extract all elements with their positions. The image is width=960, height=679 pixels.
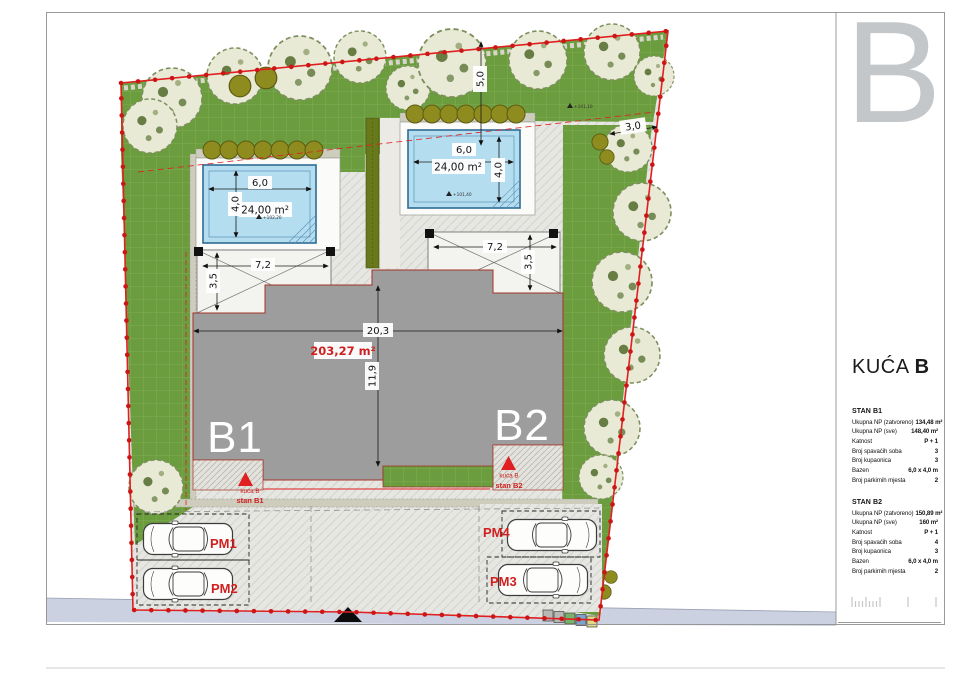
spec-row: Ukupna NP (sve)160 m² <box>852 518 938 528</box>
spec-value: 134,48 m² <box>915 418 942 428</box>
spec-value: 2 <box>935 567 938 577</box>
parking-label-pm4: PM4 <box>483 525 511 540</box>
site-top-setback-dim: 5,0 <box>476 71 487 87</box>
carport2-width-dim: 7,2 <box>487 242 503 253</box>
spec-row: Broj spavaćih soba4 <box>852 538 938 548</box>
parking-label-pm3: PM3 <box>490 574 517 589</box>
spec-row: Broj parkirnih mjesta2 <box>852 567 938 577</box>
pool2-width-dim: 6,0 <box>456 145 472 156</box>
spec-row: Bazen6,0 x 4,0 m <box>852 466 938 476</box>
unit-b2-label: B2 <box>494 401 550 450</box>
spec-value: 6,0 x 4,0 m <box>908 557 938 567</box>
spec-label: Bazen <box>852 557 869 567</box>
spec-label: Katnost <box>852 437 872 447</box>
spec-row: Ukupna NP (zatvoreno)134,48 m² <box>852 418 938 428</box>
spec-b1-header: STAN B1 <box>852 408 938 415</box>
pool1-elevation: +102,20 <box>263 215 282 221</box>
site-plan: 6,0 4,0 24,00 m² 6,0 4,0 24,00 m² 7,2 3,… <box>0 0 960 679</box>
spec-row: Broj spavaćih soba3 <box>852 447 938 457</box>
house-title-accent: B <box>915 356 930 378</box>
spec-value: 148,40 m² <box>911 427 938 437</box>
pool1-width-dim: 6,0 <box>252 178 268 189</box>
hedge-divider <box>366 118 379 268</box>
garden-path <box>380 118 400 268</box>
spec-value: P + 1 <box>924 437 938 447</box>
spec-label: Bazen <box>852 466 869 476</box>
spec-label: Broj spavaćih soba <box>852 447 902 457</box>
spec-label: Ukupna NP (zatvoreno) <box>852 509 913 519</box>
spec-row: Ukupna NP (sve)148,40 m² <box>852 427 938 437</box>
spec-value: 160 m² <box>919 518 938 528</box>
spec-value: 6,0 x 4,0 m <box>908 466 938 476</box>
spec-label: Ukupna NP (zatvoreno) <box>852 418 913 428</box>
building-width-dim: 20,3 <box>367 326 389 337</box>
car-pm4 <box>508 517 597 553</box>
spec-row: Ukupna NP (zatvoreno)150,89 m² <box>852 509 938 519</box>
pool2-depth-dim: 4,0 <box>494 162 505 178</box>
parking-label-pm2: PM2 <box>211 581 238 596</box>
pool2-area-label: 24,00 m² <box>434 162 482 174</box>
entrance-b1-house-label: kuća B <box>240 488 259 495</box>
spec-label: Broj spavaćih soba <box>852 538 902 548</box>
spec-value: 4 <box>935 538 938 548</box>
pool1-depth-dim: 4,0 <box>231 196 242 212</box>
spec-label: Broj kupaonica <box>852 547 891 557</box>
spec-value: 3 <box>935 547 938 557</box>
spec-label: Broj kupaonica <box>852 456 891 466</box>
entrance-b2-house-label: kuća B <box>499 473 518 480</box>
entrance-b2-unit-label: stan B2 <box>495 481 522 490</box>
sheet-corner-letter: B <box>845 16 942 129</box>
spec-label: Broj parkirnih mjesta <box>852 567 905 577</box>
drawing-sheet: 6,0 4,0 24,00 m² 6,0 4,0 24,00 m² 7,2 3,… <box>0 0 960 679</box>
spec-value: 3 <box>935 447 938 457</box>
spec-value: 150,89 m² <box>915 509 942 519</box>
panel-underline <box>838 622 941 623</box>
spec-row: Broj parkirnih mjesta2 <box>852 476 938 486</box>
carport2-depth-dim: 3,5 <box>524 254 535 270</box>
spec-row: Broj kupaonica3 <box>852 456 938 466</box>
pool2-elevation: +101,40 <box>453 192 472 198</box>
building-depth-dim: 11,9 <box>368 365 379 387</box>
spec-row: KatnostP + 1 <box>852 437 938 447</box>
entrance-b1-unit-label: stan B1 <box>236 496 263 505</box>
spec-row: Broj kupaonica3 <box>852 547 938 557</box>
house-title: KUĆAB <box>852 356 930 379</box>
carport1-depth-dim: 3,5 <box>209 273 220 289</box>
spec-value: P + 1 <box>924 528 938 538</box>
parking-label-pm1: PM1 <box>210 536 237 551</box>
spec-label: Broj parkirnih mjesta <box>852 476 905 486</box>
scale-bar <box>851 594 943 608</box>
site-right-setback-dim: 3,0 <box>624 120 641 133</box>
spec-label: Ukupna NP (sve) <box>852 518 897 528</box>
building-area-label: 203,27 m² <box>310 344 375 358</box>
house-title-main: KUĆA <box>852 356 910 378</box>
top-elevation: +101,10 <box>574 104 593 110</box>
spec-value: 3 <box>935 456 938 466</box>
spec-label: Ukupna NP (sve) <box>852 427 897 437</box>
spec-block-stan-b1: STAN B1 Ukupna NP (zatvoreno)134,48 m² U… <box>852 408 938 485</box>
spec-value: 2 <box>935 476 938 486</box>
spec-label: Katnost <box>852 528 872 538</box>
terrace-lawn <box>383 466 493 487</box>
spec-block-stan-b2: STAN B2 Ukupna NP (zatvoreno)150,89 m² U… <box>852 499 938 576</box>
pool1-area-label: 24,00 m² <box>241 205 289 217</box>
unit-b1-label: B1 <box>207 413 263 462</box>
spec-row: KatnostP + 1 <box>852 528 938 538</box>
carport1-width-dim: 7,2 <box>255 260 271 271</box>
spec-row: Bazen6,0 x 4,0 m <box>852 557 938 567</box>
spec-b2-header: STAN B2 <box>852 499 938 506</box>
